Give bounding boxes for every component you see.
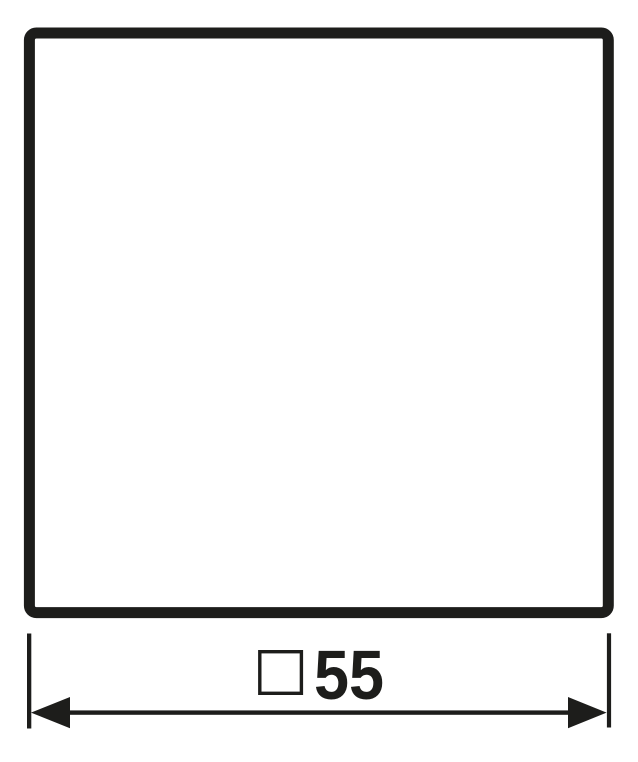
svg-text:55: 55 bbox=[314, 636, 384, 714]
